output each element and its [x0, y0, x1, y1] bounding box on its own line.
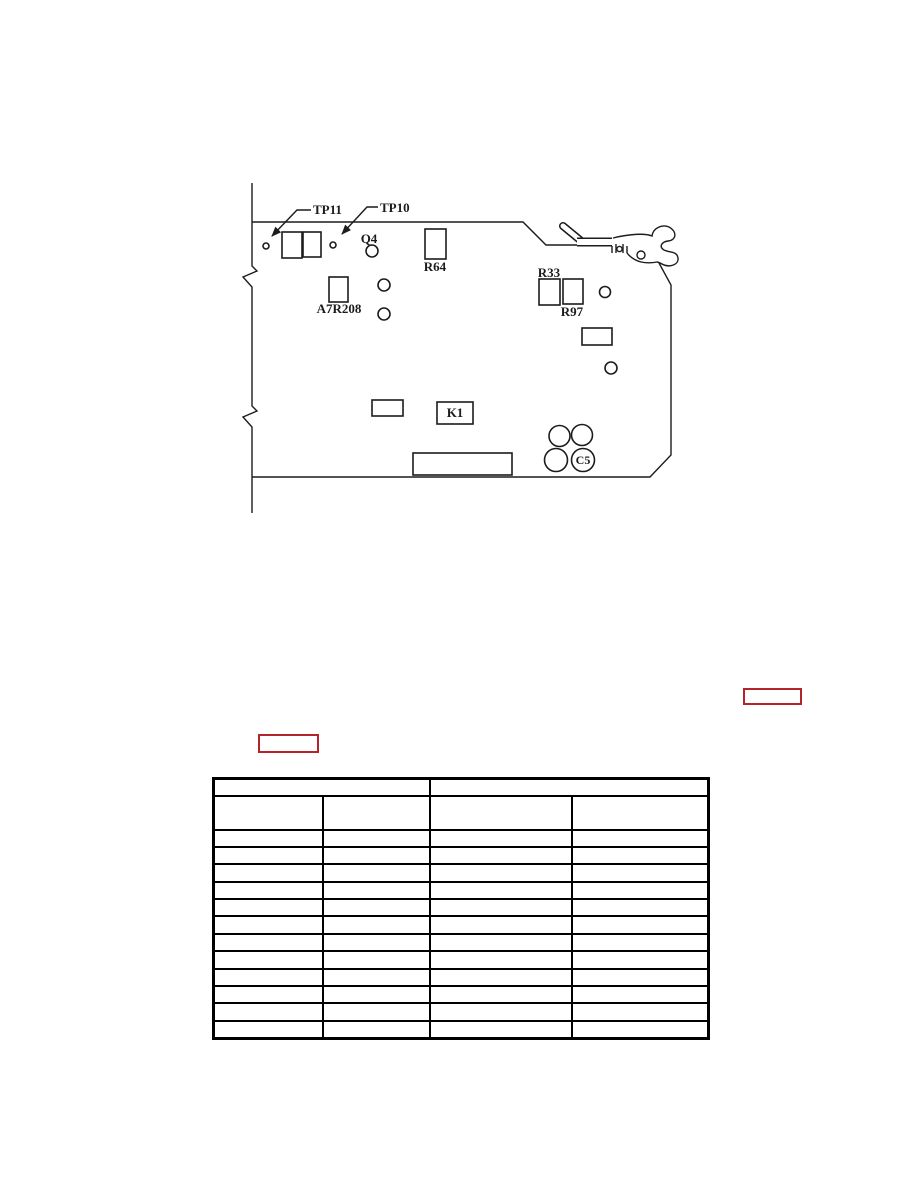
table-cell [572, 934, 709, 951]
table-cell [430, 969, 572, 986]
component-rect [582, 328, 612, 345]
table-cell [214, 1021, 323, 1038]
table-cell [214, 847, 323, 864]
table-row [214, 864, 709, 881]
tp11-label: TP11 [313, 202, 342, 217]
table-cell [430, 1021, 572, 1038]
table-cell [214, 934, 323, 951]
table-header-group-row [214, 779, 709, 796]
q4-label: Q4 [361, 231, 378, 246]
r97-label: R97 [561, 304, 584, 319]
table-cell [214, 986, 323, 1003]
tp11-test-pad [263, 243, 269, 249]
table-row [214, 916, 709, 933]
a7r208-label: A7R208 [317, 301, 362, 316]
table-cell [430, 934, 572, 951]
table-cell [430, 864, 572, 881]
table-cell [214, 951, 323, 968]
table-cell [430, 899, 572, 916]
table-cell [430, 882, 572, 899]
component-circle [378, 279, 390, 291]
table-cell [430, 916, 572, 933]
column-header-cell [323, 796, 430, 830]
table-cell [572, 864, 709, 881]
link-box-2[interactable] [258, 734, 319, 753]
table-cell [572, 986, 709, 1003]
header-group-cell [430, 779, 709, 796]
latch-pivot-hole [617, 246, 622, 251]
table-cell [214, 969, 323, 986]
table-cell [323, 847, 430, 864]
table-cell [430, 847, 572, 864]
table-cell [572, 847, 709, 864]
latch-hole [637, 251, 645, 259]
table-cell [572, 1021, 709, 1038]
component-circle [549, 426, 570, 447]
component-rect [303, 232, 321, 257]
board-left-break-line [243, 183, 257, 513]
r64-resistor [425, 229, 446, 259]
table-column-header-row [214, 796, 709, 830]
ejector-lever [563, 226, 678, 266]
table-row [214, 969, 709, 986]
component-circle [605, 362, 617, 374]
table-cell [572, 882, 709, 899]
table-row [214, 1021, 709, 1038]
table-cell [214, 830, 323, 847]
table-cell [430, 951, 572, 968]
component-circle [600, 287, 611, 298]
r97-resistor [563, 279, 583, 304]
table-cell [572, 969, 709, 986]
table-cell [323, 1021, 430, 1038]
link-box-1[interactable] [743, 688, 802, 705]
c5-label: C5 [576, 453, 591, 467]
table-cell [214, 882, 323, 899]
data-table [212, 777, 710, 1040]
table-row [214, 830, 709, 847]
table-cell [323, 864, 430, 881]
component-rect [282, 232, 302, 258]
r33-label: R33 [538, 265, 561, 280]
tp10-test-pad [330, 242, 336, 248]
table-cell [214, 1003, 323, 1020]
latch-under-arc [627, 253, 657, 263]
r33-resistor [539, 279, 560, 305]
table-cell [323, 899, 430, 916]
a7r208-resistor [329, 277, 348, 302]
table-cell [323, 951, 430, 968]
table-cell [572, 830, 709, 847]
table-cell [323, 934, 430, 951]
component-circle [572, 425, 593, 446]
board-diagram: TP11 TP10 Q4 R64 A7R208 R33 R97 K1 C5 [0, 0, 918, 560]
tp10-label: TP10 [380, 200, 410, 215]
document-page: TP11 TP10 Q4 R64 A7R208 R33 R97 K1 C5 [0, 0, 918, 1188]
table-cell [572, 899, 709, 916]
table-cell [323, 1003, 430, 1020]
component-circle [378, 308, 390, 320]
table-body [214, 830, 709, 1039]
table-row [214, 1003, 709, 1020]
table-cell [323, 830, 430, 847]
table-cell [323, 986, 430, 1003]
q4-transistor [366, 245, 378, 257]
table-cell [430, 830, 572, 847]
table-cell [214, 899, 323, 916]
column-header-cell [572, 796, 709, 830]
r64-label: R64 [424, 259, 447, 274]
table-cell [572, 1003, 709, 1020]
connector-rect [413, 453, 512, 475]
table-cell [572, 916, 709, 933]
component-rect [372, 400, 403, 416]
header-group-cell [214, 779, 430, 796]
table-cell [323, 882, 430, 899]
table-row [214, 951, 709, 968]
table-row [214, 899, 709, 916]
component-circle [545, 449, 568, 472]
table-cell [430, 986, 572, 1003]
column-header-cell [214, 796, 323, 830]
table-cell [572, 951, 709, 968]
table-row [214, 847, 709, 864]
k1-label: K1 [447, 405, 464, 420]
table-cell [214, 916, 323, 933]
tp10-leader-arrow [342, 207, 378, 234]
table-row [214, 934, 709, 951]
column-header-cell [430, 796, 572, 830]
table-row [214, 882, 709, 899]
table-cell [430, 1003, 572, 1020]
table-cell [214, 864, 323, 881]
table-cell [323, 969, 430, 986]
table-row [214, 986, 709, 1003]
table-cell [323, 916, 430, 933]
